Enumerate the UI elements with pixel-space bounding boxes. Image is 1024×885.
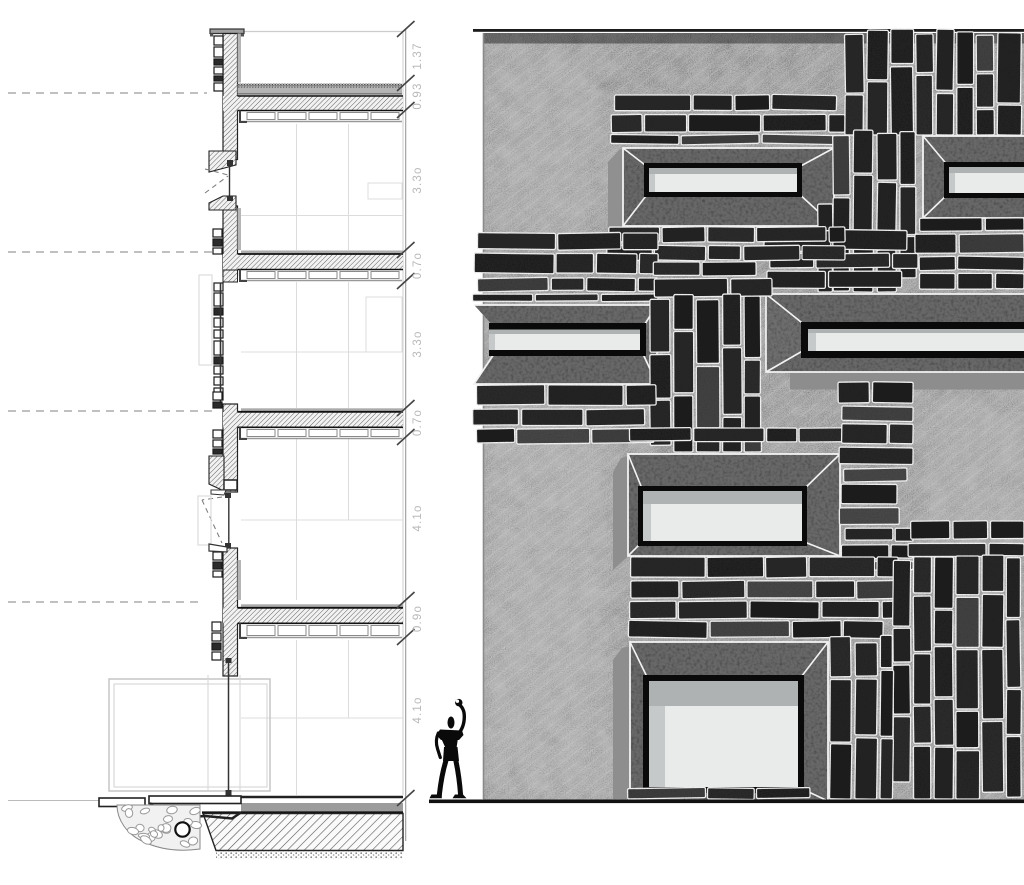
svg-text:4.1o: 4.1o	[412, 696, 424, 723]
svg-text:3.3o: 3.3o	[412, 166, 424, 193]
svg-text:0.9o: 0.9o	[412, 605, 424, 632]
svg-text:0.7o: 0.7o	[412, 252, 424, 279]
svg-text:3.3o: 3.3o	[412, 330, 424, 357]
svg-text:0.93: 0.93	[412, 82, 424, 109]
svg-text:4.1o: 4.1o	[412, 504, 424, 531]
svg-text:1.37: 1.37	[412, 42, 424, 69]
svg-text:0.7o: 0.7o	[412, 409, 424, 436]
